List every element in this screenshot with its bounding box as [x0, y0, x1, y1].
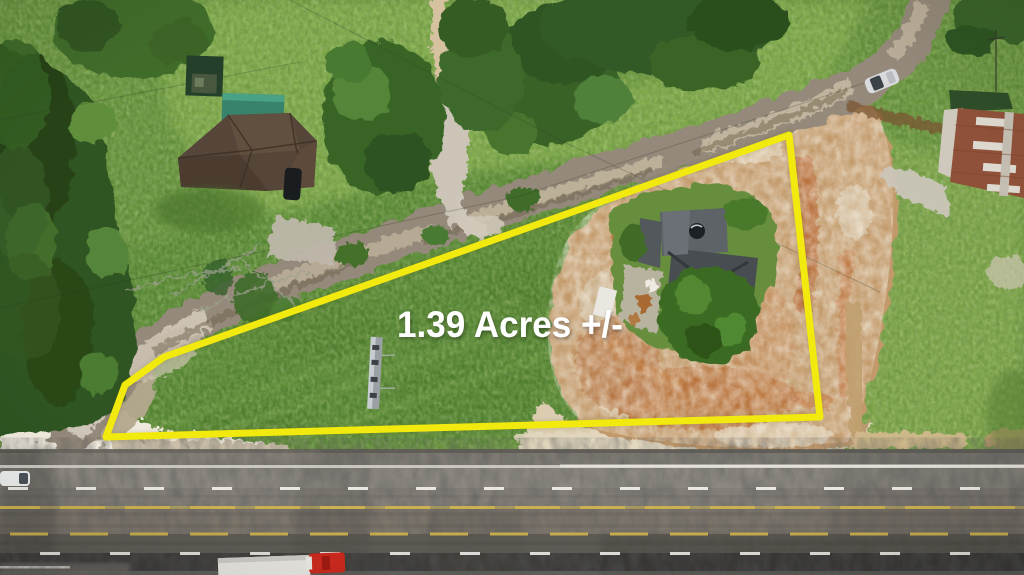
svg-text:1.39 Acres +/-: 1.39 Acres +/- — [397, 304, 623, 345]
